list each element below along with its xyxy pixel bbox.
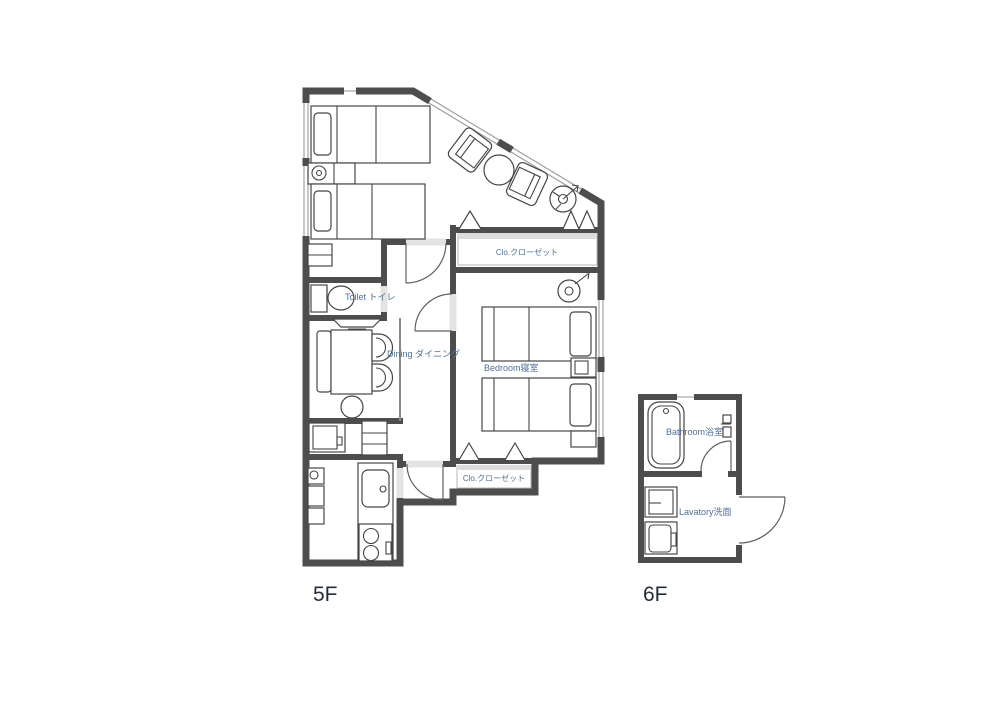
label-lavatory: Lavatory洗面: [679, 506, 732, 517]
window-left-lower: [304, 166, 308, 236]
dining-table: [331, 330, 372, 394]
bedroom-nightstand: [571, 358, 596, 377]
utility-fixtures: [308, 468, 324, 524]
nightstand-with-lamp: [308, 163, 355, 184]
door-entry-6f: [739, 497, 785, 543]
fold-door-icon: [459, 443, 479, 460]
dining-bench: [317, 331, 331, 392]
door-bedroom: [415, 294, 452, 331]
floor-6f: Bathroom浴室 Lavatory洗面: [641, 397, 785, 560]
door-living-hall: [406, 243, 446, 283]
window-bedroom-lower: [599, 372, 603, 437]
twin-bed-top: [311, 106, 430, 163]
fold-door-icon: [563, 211, 595, 229]
kitchen-shelf: [362, 421, 387, 455]
bedside-cabinet: [308, 244, 332, 266]
bedroom-bed-bottom: [482, 378, 596, 431]
twin-bed-bottom: [311, 184, 425, 239]
floor-plan-drawing: Toilet トイレ Dining ダイニング Bedroom寝室 Clo.クロ…: [0, 0, 1002, 712]
door-bathroom: [701, 441, 731, 471]
floor-5f: Toilet トイレ Dining ダイニング Bedroom寝室 Clo.クロ…: [304, 91, 603, 563]
refrigerator: [309, 423, 345, 452]
kitchen-sink: [362, 470, 389, 507]
window-bedroom-upper: [599, 300, 603, 357]
label-bedroom: Bedroom寝室: [484, 362, 539, 373]
door-entrance: [407, 464, 443, 500]
dining-stool: [341, 396, 363, 418]
fold-door-icon: [459, 211, 481, 229]
floor-lamp: [550, 185, 578, 212]
floor-label-5f: 5F: [313, 583, 338, 606]
entry-opening-6f: [735, 495, 744, 545]
fold-door-icon: [505, 443, 525, 460]
label-toilet: Toilet トイレ: [345, 292, 396, 302]
label-closet-lower: Clo.クローゼット: [463, 473, 525, 483]
window-left-upper: [304, 103, 308, 158]
floor-label-6f: 6F: [643, 583, 668, 606]
round-table: [484, 155, 514, 185]
bedroom-stand: [571, 431, 596, 447]
label-dining: Dining ダイニング: [387, 348, 460, 359]
floor-plan-page: Toilet トイレ Dining ダイニング Bedroom寝室 Clo.クロ…: [0, 0, 1002, 712]
stove: [359, 524, 392, 561]
washing-machine: [645, 522, 677, 554]
bedroom-bed-top: [482, 307, 596, 361]
lavatory-sink: [645, 487, 677, 517]
label-closet-upper: Clo.クローゼット: [496, 247, 558, 257]
bedroom-lamp: [558, 272, 589, 302]
label-bathroom: Bathroom浴室: [666, 426, 723, 437]
tv-wall-mounted: [333, 319, 381, 329]
dining-chair-2: [372, 364, 393, 391]
